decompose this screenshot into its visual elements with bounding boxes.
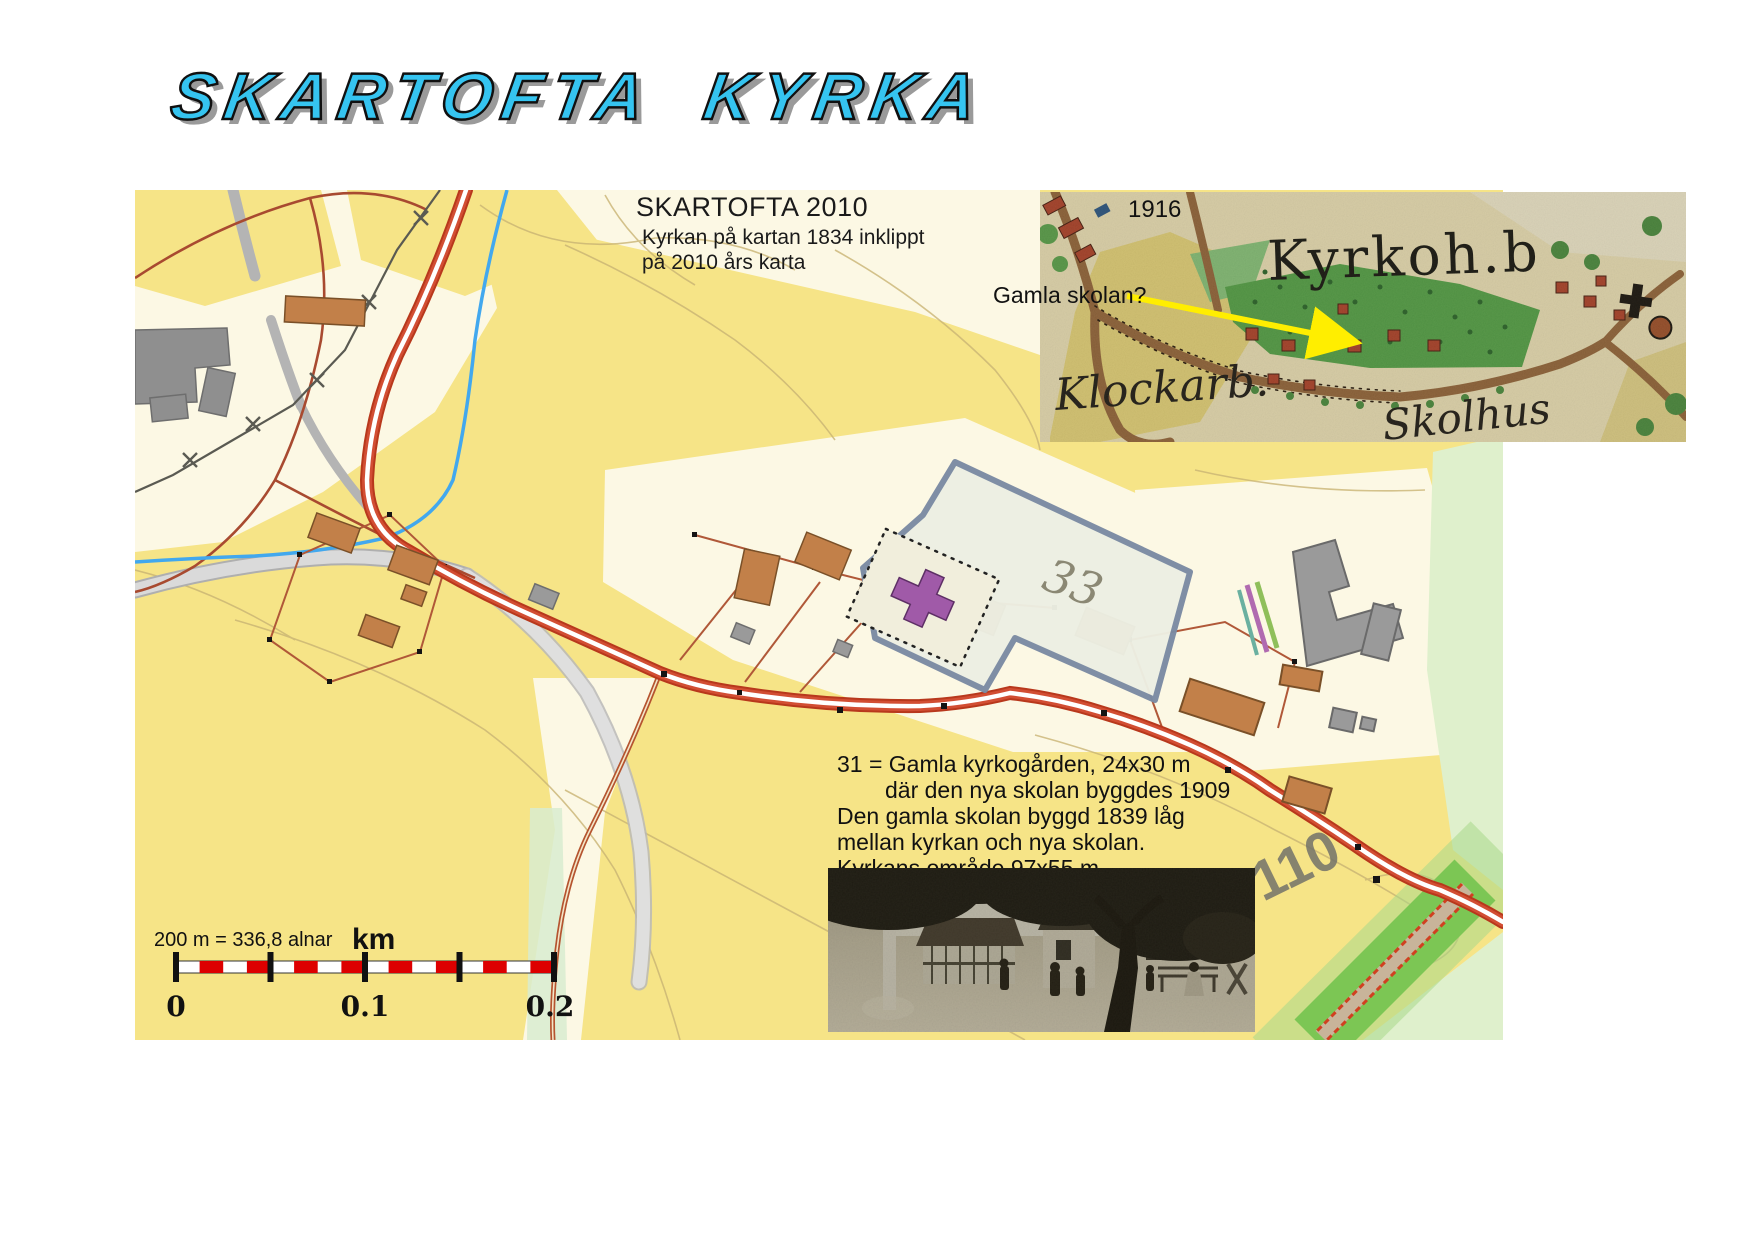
- map-caption-line2: på 2010 års karta: [642, 251, 805, 275]
- inset-grain: [1040, 192, 1686, 442]
- map-heading: SKARTOFTA 2010: [636, 192, 868, 223]
- photo-canvas: [828, 868, 1255, 1032]
- note-line-3: Den gamla skolan byggd 1839 låg: [837, 803, 1230, 829]
- note-line-2: där den nya skolan byggdes 1909: [837, 777, 1230, 803]
- map-note-block: 31 = Gamla kyrkogården, 24x30 m där den …: [837, 751, 1230, 881]
- note-line-4: mellan kyrkan och nya skolan.: [837, 829, 1230, 855]
- scalebar-tick-02: 0.2: [526, 990, 575, 1023]
- scalebar-tick-01: 0.1: [341, 990, 390, 1023]
- scalebar: 200 m = 336,8 alnar km 0 0.1: [140, 916, 576, 1028]
- scalebar-bar: [173, 952, 557, 982]
- inset-map-1916: Kyrkoh.b Klockarb. Skolhus: [1040, 192, 1686, 442]
- note-line-1: 31 = Gamla kyrkogården, 24x30 m: [837, 751, 1230, 777]
- scalebar-equivalence: 200 m = 336,8 alnar: [154, 929, 333, 951]
- page: SKARTOFTA KYRKA: [0, 0, 1754, 1240]
- gamla-skolan-label: Gamla skolan?: [993, 282, 1146, 309]
- inset-1916-canvas: Kyrkoh.b Klockarb. Skolhus: [1040, 192, 1686, 442]
- inset-year-label: 1916: [1128, 196, 1181, 224]
- map-caption-line1: Kyrkan på kartan 1834 inklippt: [642, 226, 925, 250]
- photo-old-school: [828, 868, 1255, 1032]
- page-title: SKARTOFTA KYRKA: [166, 58, 991, 134]
- scalebar-tick-0: 0: [166, 990, 185, 1023]
- scalebar-unit: km: [352, 923, 395, 956]
